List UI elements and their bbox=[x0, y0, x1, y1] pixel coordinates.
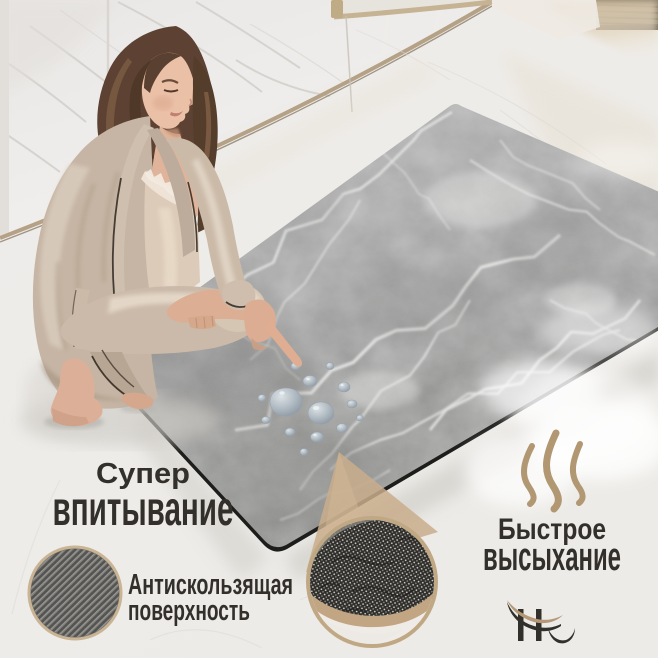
svg-text:впитывание: впитывание bbox=[53, 483, 234, 536]
svg-text:поверхность: поверхность bbox=[128, 595, 250, 627]
svg-text:высыхание: высыхание bbox=[483, 535, 621, 579]
